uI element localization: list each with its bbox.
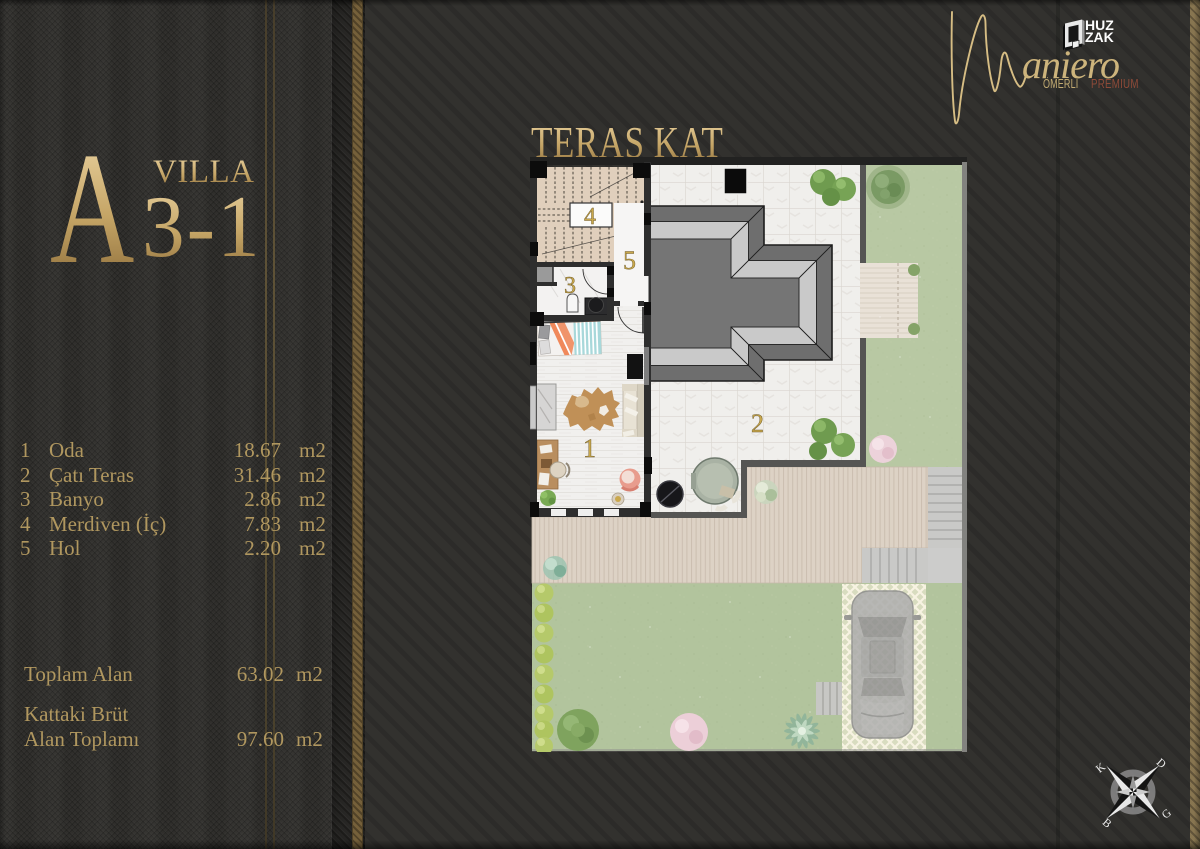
svg-text:K: K bbox=[1094, 761, 1108, 776]
svg-text:G: G bbox=[1160, 807, 1174, 822]
svg-text:3: 3 bbox=[564, 273, 576, 299]
svg-text:1: 1 bbox=[583, 434, 596, 463]
svg-text:4: 4 bbox=[584, 204, 596, 230]
svg-text:5: 5 bbox=[623, 246, 636, 275]
svg-text:2: 2 bbox=[751, 409, 764, 438]
svg-text:B: B bbox=[1100, 816, 1114, 830]
